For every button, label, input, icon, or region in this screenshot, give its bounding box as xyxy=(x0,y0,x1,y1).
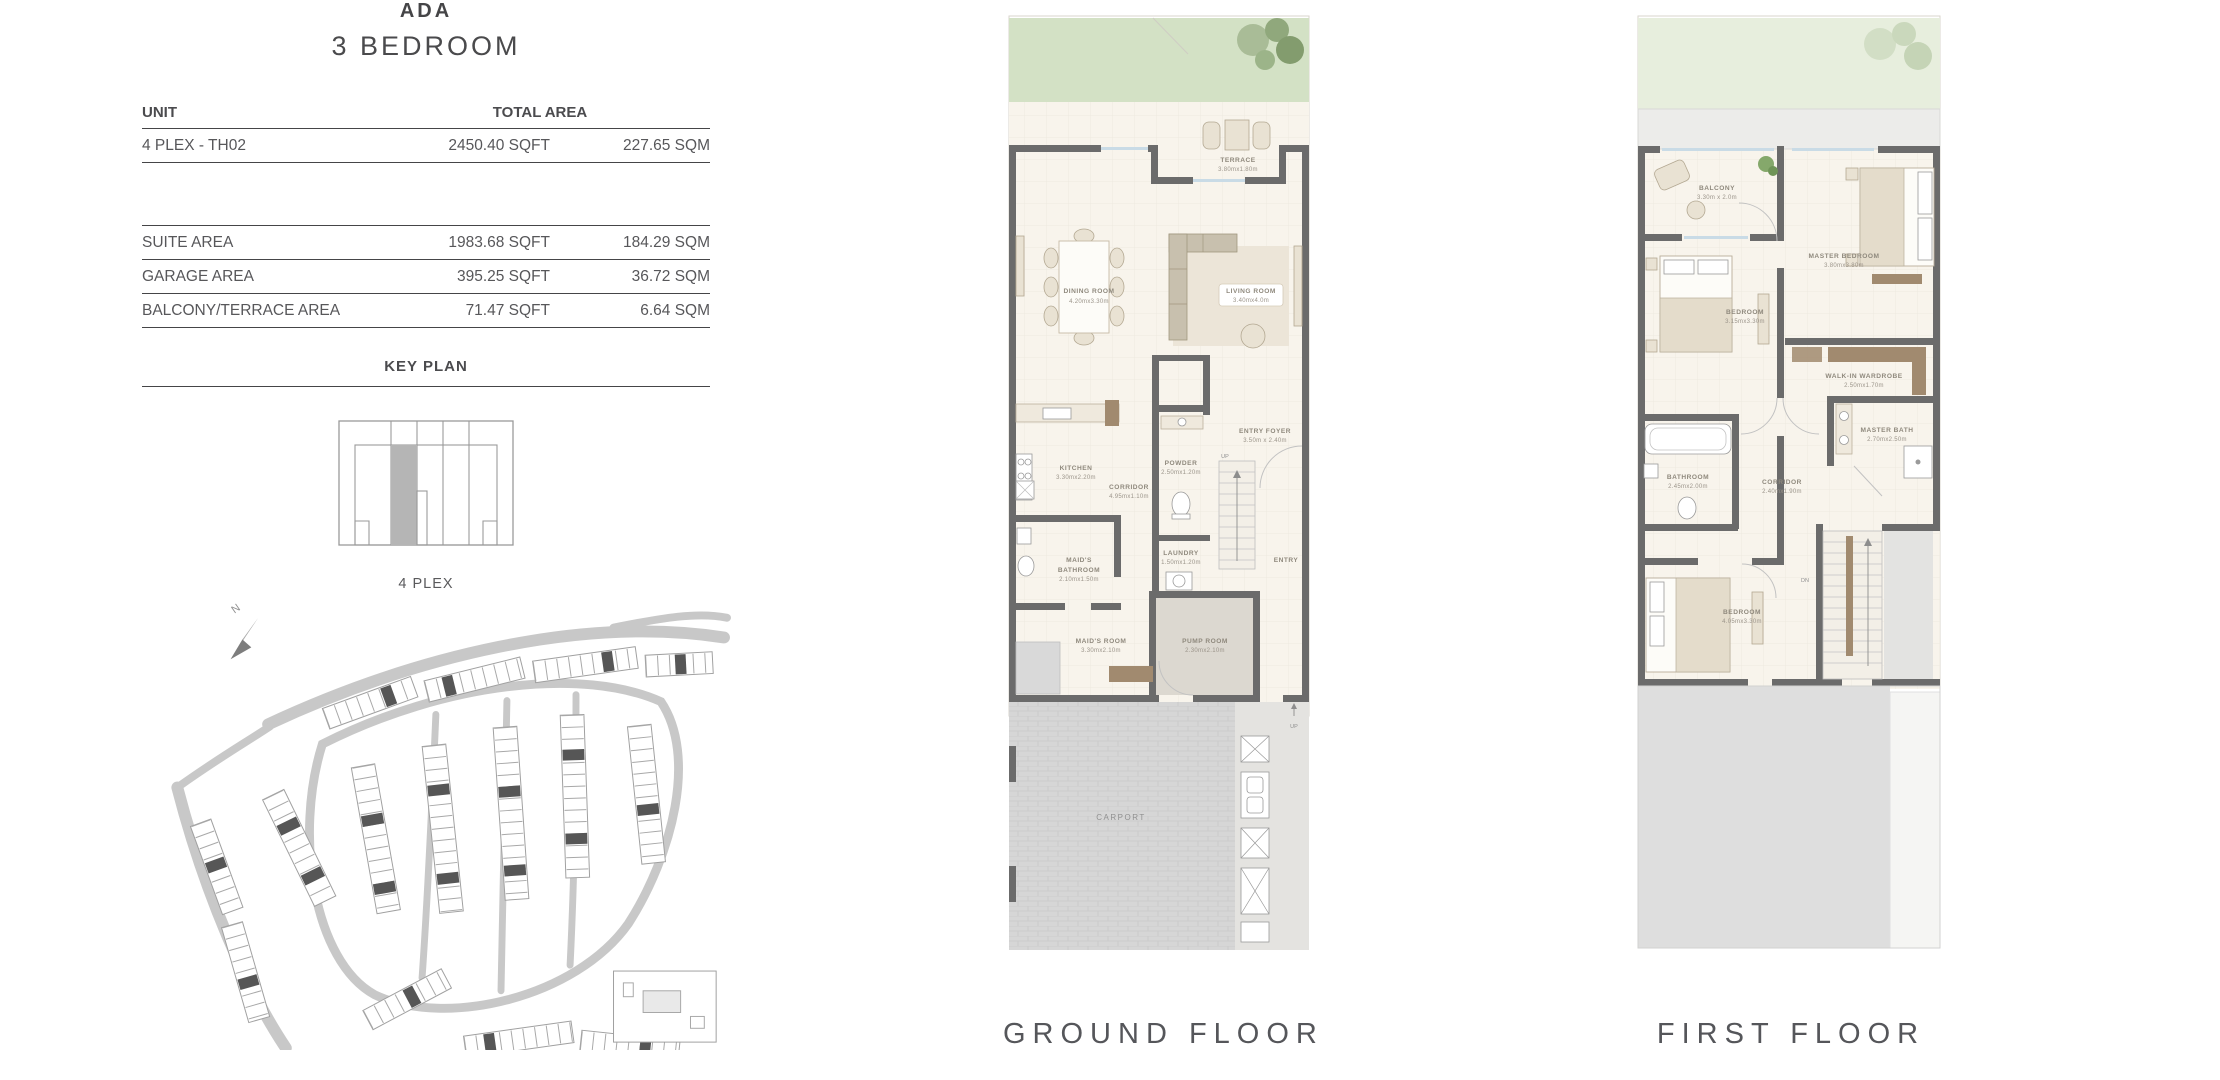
laundry-fixtures xyxy=(1166,572,1192,590)
garage-area-sqft: 395.25 SQFT xyxy=(370,268,550,286)
first-floor-label: FIRST FLOOR xyxy=(1632,1018,1950,1051)
powder-dims: 2.50mx1.20m xyxy=(1161,470,1201,476)
maids-bathroom-label-line1: MAID'S xyxy=(1066,557,1092,564)
stairs-up: UP xyxy=(1219,454,1255,569)
pump-room-dims: 2.30mx2.10m xyxy=(1185,648,1225,654)
kitchen-dims: 3.30mx2.20m xyxy=(1056,475,1096,481)
maids-bathroom-label-line2: BATHROOM xyxy=(1058,567,1100,574)
dining-room-dims: 4.20mx3.30m xyxy=(1069,299,1109,305)
site-map-drawing: N xyxy=(120,598,732,1050)
bathroom-label: BATHROOM xyxy=(1667,474,1709,481)
dining-room-label: DINING ROOM xyxy=(1064,288,1115,295)
garden-below xyxy=(1638,18,1940,149)
unit-name: 4 PLEX - TH02 xyxy=(142,137,370,155)
kitchen-label: KITCHEN xyxy=(1060,465,1093,472)
table-spacer xyxy=(142,163,710,226)
unit-sqm: 227.65 SQM xyxy=(550,137,710,155)
table-row-unit: 4 PLEX - TH02 2450.40 SQFT 227.65 SQM xyxy=(142,129,710,163)
key-plan-caption: 4 PLEX xyxy=(120,576,732,592)
balcony-dims: 3.30m x 2.0m xyxy=(1697,195,1737,201)
first-corridor-label: CORRIDOR xyxy=(1762,479,1802,486)
living-room-label: LIVING ROOM xyxy=(1226,288,1276,295)
balcony-terrace-area-label: BALCONY/TERRACE AREA xyxy=(142,302,370,320)
front-bedroom-dims: 3.15mx3.30m xyxy=(1725,319,1765,325)
ground-floor-plan: TERRACE 3.80mx1.80m xyxy=(1003,6,1315,961)
carport-area: CARPORT UP xyxy=(1009,702,1309,950)
key-plan: 4 PLEX xyxy=(120,409,732,592)
back-bedroom-dims: 4.05mx3.30m xyxy=(1722,619,1762,625)
walk-in-wardrobe-label: WALK-IN WARDROBE xyxy=(1825,373,1902,380)
balcony-terrace-area-sqm: 6.64 SQM xyxy=(550,302,710,320)
key-plan-heading: KEY PLAN xyxy=(142,358,710,387)
corridor-dims: 4.95mx1.10m xyxy=(1109,494,1149,500)
garage-area-label: GARAGE AREA xyxy=(142,268,370,286)
powder-label: POWDER xyxy=(1165,460,1198,467)
bathroom-dims: 2.45mx2.00m xyxy=(1668,484,1708,490)
table-row-suite-area: SUITE AREA 1983.68 SQFT 184.29 SQM xyxy=(142,226,710,260)
key-plan-highlighted-unit xyxy=(391,445,417,545)
suite-area-sqm: 184.29 SQM xyxy=(550,234,710,252)
info-panel: ADA 3 BEDROOM UNIT TOTAL AREA 4 PLEX - T… xyxy=(120,0,732,1055)
maids-bathroom-fixtures xyxy=(1016,481,1034,576)
unit-type-title: 3 BEDROOM xyxy=(120,31,732,62)
project-title: ADA xyxy=(120,0,732,23)
stairs-up-label: UP xyxy=(1221,454,1229,460)
site-map: N xyxy=(120,598,732,1055)
garden xyxy=(1009,18,1309,102)
maids-bathroom-dims: 2.10mx1.50m xyxy=(1059,577,1099,583)
garage-area-sqm: 36.72 SQM xyxy=(550,268,710,286)
entry-label: ENTRY xyxy=(1274,557,1299,564)
suite-area-sqft: 1983.68 SQFT xyxy=(370,234,550,252)
unit-column-header: UNIT xyxy=(142,104,370,121)
pump-room-label: PUMP ROOM xyxy=(1182,638,1228,645)
master-bedroom-dims: 3.80mx3.80m xyxy=(1824,263,1864,269)
north-arrow-icon: N xyxy=(229,602,258,659)
area-table: UNIT TOTAL AREA 4 PLEX - TH02 2450.40 SQ… xyxy=(142,104,710,328)
balcony-terrace-area-sqft: 71.47 SQFT xyxy=(370,302,550,320)
entry-foyer-dims: 3.50m x 2.40m xyxy=(1243,438,1287,444)
stairs-down-label: DN xyxy=(1801,578,1809,584)
key-plan-diagram xyxy=(321,409,531,569)
front-bedroom-label: BEDROOM xyxy=(1726,309,1764,316)
carport-up-label: UP xyxy=(1290,724,1298,730)
housing-blocks xyxy=(190,647,716,1050)
entry-foyer-label: ENTRY FOYER xyxy=(1239,428,1291,435)
corridor-label: CORRIDOR xyxy=(1109,484,1149,491)
maids-room-label: MAID'S ROOM xyxy=(1076,638,1127,645)
table-row-balcony-terrace-area: BALCONY/TERRACE AREA 71.47 SQFT 6.64 SQM xyxy=(142,294,710,328)
terrace-label: TERRACE xyxy=(1220,157,1255,164)
north-label: N xyxy=(229,602,242,616)
master-bedroom-label: MASTER BEDROOM xyxy=(1808,253,1879,260)
total-area-column-header: TOTAL AREA xyxy=(370,104,710,121)
master-bath-dims: 2.70mx2.50m xyxy=(1867,437,1907,443)
living-room-dims: 3.40mx4.0m xyxy=(1233,298,1269,304)
pump-room-floor xyxy=(1156,598,1253,695)
laundry-label: LAUNDRY xyxy=(1163,550,1199,557)
maids-room-dims: 3.30mx2.10m xyxy=(1081,648,1121,654)
unit-sqft: 2450.40 SQFT xyxy=(370,137,550,155)
laundry-dims: 1.50mx1.20m xyxy=(1161,560,1201,566)
first-floor-plan: BALCONY 3.30m x 2.0m BEDROOM 3.15mx3.30m… xyxy=(1632,6,1950,961)
terrace-seating xyxy=(1203,120,1270,150)
balcony-label: BALCONY xyxy=(1699,185,1735,192)
community-center xyxy=(614,971,717,1042)
master-bath-label: MASTER BATH xyxy=(1861,427,1914,434)
carport-label: CARPORT xyxy=(1096,813,1145,822)
walk-in-wardrobe-dims: 2.50mx1.70m xyxy=(1844,383,1884,389)
ground-floor-label: GROUND FLOOR xyxy=(1003,1018,1315,1051)
suite-area-label: SUITE AREA xyxy=(142,234,370,252)
terrace-dims: 3.80mx1.80m xyxy=(1218,167,1258,173)
first-corridor-dims: 2.40mx1.90m xyxy=(1762,489,1802,495)
table-row-garage-area: GARAGE AREA 395.25 SQFT 36.72 SQM xyxy=(142,260,710,294)
area-table-header: UNIT TOTAL AREA xyxy=(142,104,710,129)
back-bedroom-label: BEDROOM xyxy=(1723,609,1761,616)
